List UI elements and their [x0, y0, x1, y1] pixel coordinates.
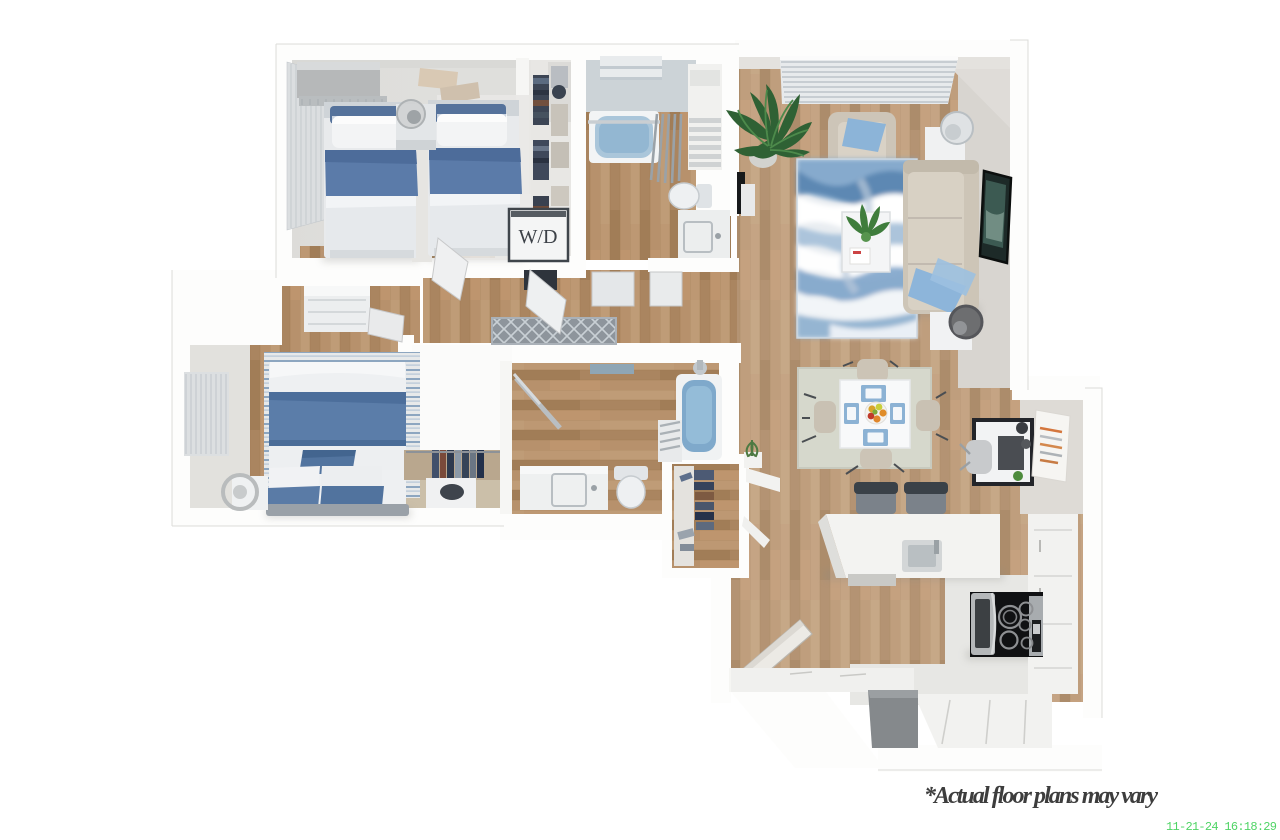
svg-text:*Actual floor plans may vary: *Actual floor plans may vary	[924, 783, 1158, 809]
svg-text:W/D: W/D	[519, 226, 558, 248]
svg-text:11-21-24 16:18:29: 11-21-24 16:18:29	[1166, 820, 1277, 834]
